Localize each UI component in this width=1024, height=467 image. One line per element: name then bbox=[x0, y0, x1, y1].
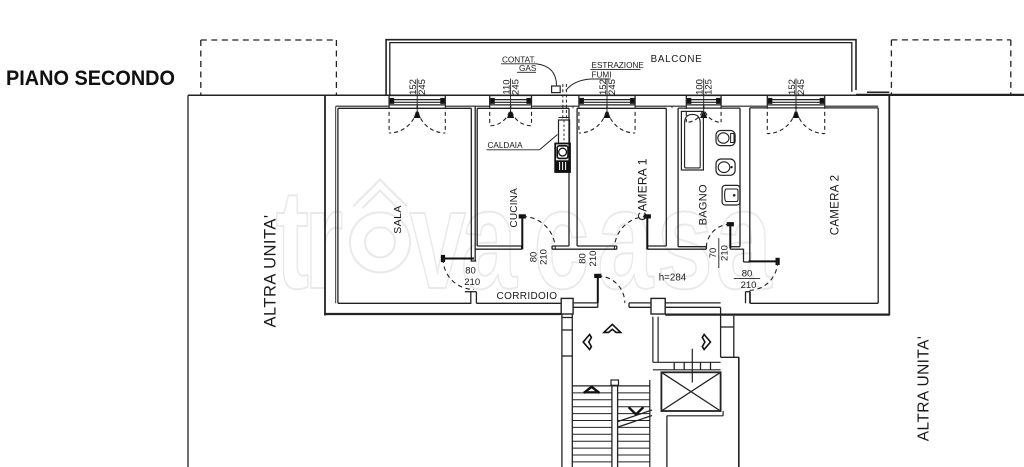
svg-text:GAS: GAS bbox=[519, 64, 537, 73]
svg-text:CALDAIA: CALDAIA bbox=[488, 141, 524, 150]
svg-text:SALA: SALA bbox=[392, 205, 404, 233]
svg-text:CAMERA 2: CAMERA 2 bbox=[830, 175, 842, 236]
svg-text:125: 125 bbox=[704, 79, 715, 95]
svg-text:v: v bbox=[410, 161, 466, 319]
svg-text:ALTRA UNITA': ALTRA UNITA' bbox=[916, 336, 933, 441]
svg-text:CAMERA 1: CAMERA 1 bbox=[636, 158, 650, 220]
svg-text:h=284: h=284 bbox=[659, 272, 687, 283]
svg-text:245: 245 bbox=[511, 79, 522, 95]
svg-text:ALTRA UNITA': ALTRA UNITA' bbox=[262, 214, 280, 327]
svg-text:80: 80 bbox=[465, 266, 476, 277]
svg-text:210: 210 bbox=[588, 251, 599, 267]
svg-text:80: 80 bbox=[578, 253, 589, 264]
svg-text:245: 245 bbox=[417, 79, 428, 95]
svg-text:FUMI: FUMI bbox=[592, 71, 612, 80]
svg-text:210: 210 bbox=[538, 249, 549, 265]
svg-text:BALCONE: BALCONE bbox=[651, 54, 703, 65]
svg-text:210: 210 bbox=[464, 277, 480, 288]
svg-text:70: 70 bbox=[708, 248, 719, 259]
svg-text:245: 245 bbox=[796, 79, 807, 95]
svg-text:245: 245 bbox=[607, 79, 618, 95]
svg-text:ESTRAZIONE: ESTRAZIONE bbox=[592, 61, 645, 70]
svg-text:210: 210 bbox=[720, 245, 731, 261]
svg-text:BAGNO: BAGNO bbox=[698, 184, 710, 225]
svg-text:PIANO SECONDO: PIANO SECONDO bbox=[6, 67, 175, 90]
svg-text:CUCINA: CUCINA bbox=[509, 188, 520, 228]
svg-text:80: 80 bbox=[742, 269, 753, 280]
svg-text:210: 210 bbox=[741, 280, 757, 291]
svg-text:CORRIDOIO: CORRIDOIO bbox=[497, 291, 558, 302]
